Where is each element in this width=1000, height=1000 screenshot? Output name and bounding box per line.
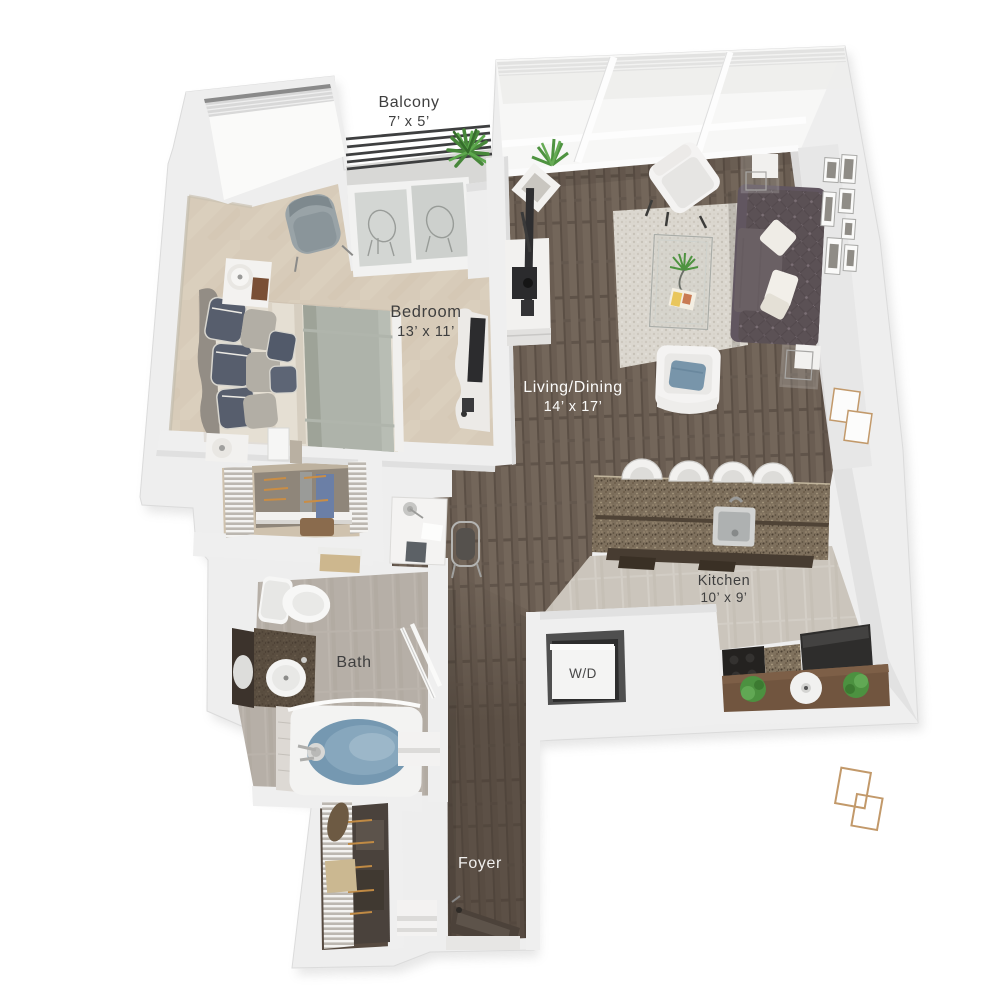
svg-text:Living/Dining: Living/Dining <box>523 379 622 396</box>
svg-text:Kitchen: Kitchen <box>698 573 751 589</box>
svg-text:Foyer: Foyer <box>458 855 502 872</box>
svg-text:Bedroom: Bedroom <box>390 303 461 321</box>
svg-text:W/D: W/D <box>569 666 597 681</box>
svg-text:10’ x 9’: 10’ x 9’ <box>700 590 747 605</box>
svg-text:14’ x 17’: 14’ x 17’ <box>544 399 603 415</box>
svg-text:Bath: Bath <box>336 654 371 671</box>
svg-text:13’ x 11’: 13’ x 11’ <box>397 324 455 340</box>
svg-text:7’ x 5’: 7’ x 5’ <box>388 114 430 130</box>
svg-text:Balcony: Balcony <box>378 94 439 111</box>
